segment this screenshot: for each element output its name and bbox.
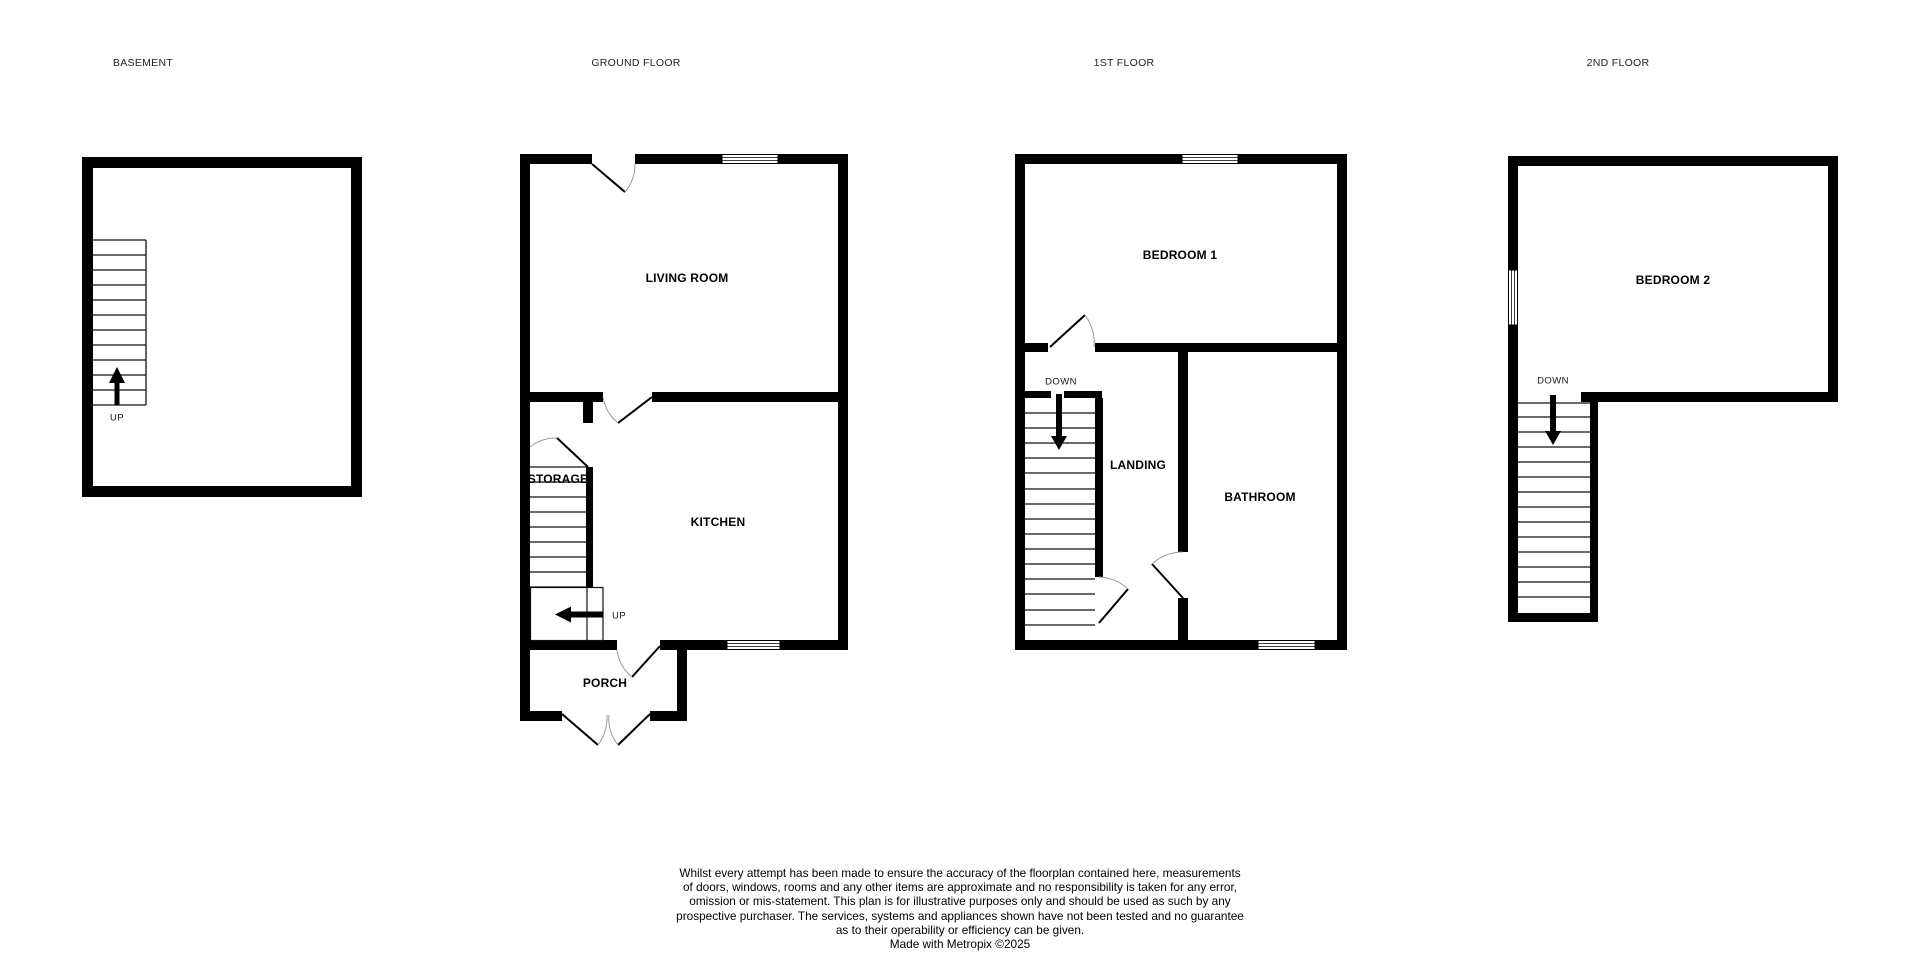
down-arrow-icon — [1051, 394, 1067, 450]
room-label-porch: PORCH — [583, 676, 627, 690]
walls — [1015, 154, 1347, 650]
room-label-kitchen: KITCHEN — [691, 515, 746, 529]
disclaimer-line: as to their operability or efficiency ca… — [460, 923, 1460, 937]
stair-direction-basement: UP — [110, 413, 124, 424]
floorplan-page: BASEMENT GROUND FLOOR 1ST FLOOR 2ND FLOO… — [0, 0, 1920, 956]
disclaimer-line: of doors, windows, rooms and any other i… — [460, 880, 1460, 894]
room-label-living-room: LIVING ROOM — [646, 271, 729, 285]
room-label-storage: STORAGE — [528, 472, 589, 486]
second-floorplan — [1508, 156, 1838, 622]
ground-floorplan — [520, 154, 848, 745]
window — [727, 641, 780, 650]
stair-direction-first: DOWN — [1045, 377, 1077, 388]
floorplan-drawing — [0, 0, 1920, 956]
door-swings — [530, 164, 660, 745]
credit-line: Made with Metropix ©2025 — [460, 937, 1460, 951]
basement-floorplan — [82, 157, 362, 497]
floor-title-first: 1ST FLOOR — [1094, 57, 1155, 69]
window — [1182, 155, 1238, 164]
window — [722, 155, 778, 164]
walls — [82, 157, 362, 497]
disclaimer-line: prospective purchaser. The services, sys… — [460, 909, 1460, 923]
disclaimer-text: Whilst every attempt has been made to en… — [460, 866, 1460, 951]
up-arrow-icon — [109, 367, 125, 405]
floor-title-basement: BASEMENT — [113, 57, 173, 69]
disclaimer-line: Whilst every attempt has been made to en… — [460, 866, 1460, 880]
room-label-landing: LANDING — [1110, 458, 1166, 472]
disclaimer-line: omission or mis-statement. This plan is … — [460, 894, 1460, 908]
floor-title-ground: GROUND FLOOR — [591, 57, 680, 69]
room-label-bedroom-2: BEDROOM 2 — [1636, 273, 1710, 287]
stair-direction-ground: UP — [612, 611, 626, 622]
floor-title-second: 2ND FLOOR — [1587, 57, 1650, 69]
room-label-bedroom-1: BEDROOM 1 — [1143, 248, 1217, 262]
window — [1258, 641, 1315, 650]
window — [1509, 270, 1518, 325]
first-floorplan — [1015, 154, 1347, 650]
stair-direction-second: DOWN — [1537, 376, 1569, 387]
room-label-bathroom: BATHROOM — [1224, 490, 1295, 504]
